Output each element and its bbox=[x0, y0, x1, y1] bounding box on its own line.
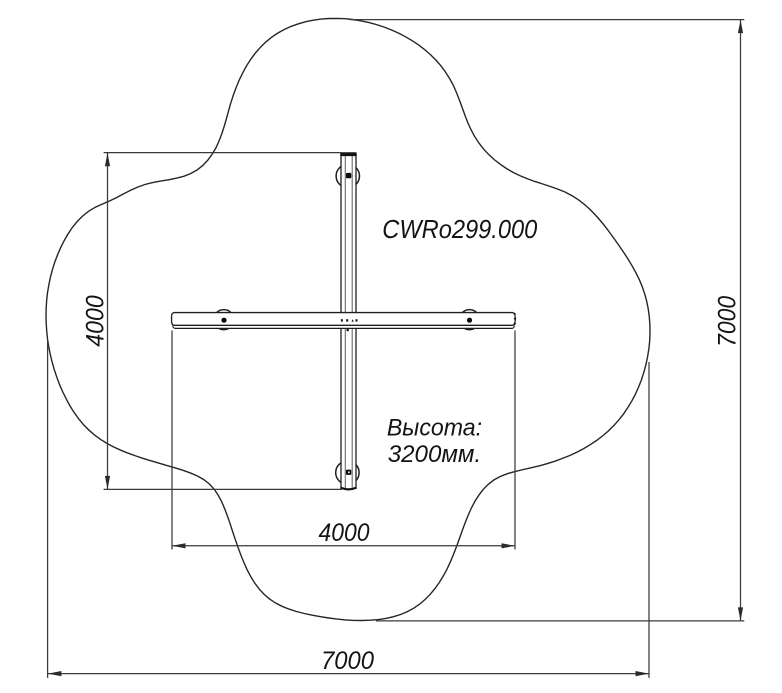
svg-text:4000: 4000 bbox=[81, 295, 109, 346]
svg-text:7000: 7000 bbox=[321, 647, 374, 675]
svg-text:3200мм.: 3200мм. bbox=[388, 441, 482, 468]
svg-text:Высота:: Высота: bbox=[387, 414, 482, 441]
svg-text:4000: 4000 bbox=[319, 519, 370, 547]
svg-text:7000: 7000 bbox=[714, 296, 742, 347]
svg-text:CWRo299.000: CWRo299.000 bbox=[382, 214, 537, 244]
